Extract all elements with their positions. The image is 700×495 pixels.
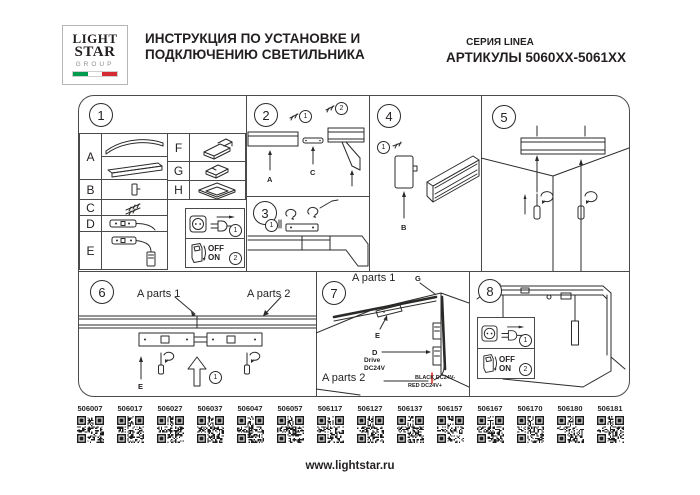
qr-item: 506157 <box>435 404 465 443</box>
substep-1-badge: 1 <box>209 371 222 384</box>
part-label-B: B <box>79 179 102 200</box>
qr-label: 506037 <box>197 404 222 413</box>
qr-item: 506007 <box>75 404 105 443</box>
part-C-screws <box>101 199 168 216</box>
plug-in-step: 1 <box>186 209 244 238</box>
articles-label: АРТИКУЛЫ 5060XX-5061XX <box>400 50 672 65</box>
part-F-corner-connector <box>189 133 246 162</box>
qr-label: 506167 <box>477 404 502 413</box>
qr-item: 506117 <box>315 404 345 443</box>
drive-label: Drive <box>364 358 380 365</box>
switch-icon <box>481 353 497 374</box>
part-G-elbow-connector <box>189 161 246 181</box>
qr-code-icon <box>517 416 544 443</box>
italian-flag-icon <box>72 71 118 77</box>
label-C: C <box>310 169 315 177</box>
page-title: ИНСТРУКЦИЯ ПО УСТАНОВКЕ И ПОДКЛЮЧЕНИЮ СВ… <box>145 31 365 63</box>
step-5-panel: 5 <box>481 96 629 271</box>
qr-code-row: 5060075060175060275060375060475060575061… <box>0 404 700 443</box>
substep-2-badge: 2 <box>335 102 348 115</box>
label-D: D <box>372 349 377 357</box>
part-label-A: A <box>79 133 102 180</box>
qr-item: 506017 <box>115 404 145 443</box>
substep-2-badge: 2 <box>519 363 532 376</box>
series-label: СЕРИЯ LINEA <box>420 37 580 48</box>
a-parts-1-label: A parts 1 <box>137 289 180 300</box>
qr-label: 506180 <box>557 404 582 413</box>
website-label: www.lightstar.ru <box>0 460 700 472</box>
step-6-panel: 6 A parts 1 A parts 2 E 1 <box>79 271 316 396</box>
step-8-number: 8 <box>478 279 502 303</box>
part-label-E: E <box>79 231 102 270</box>
qr-code-icon <box>77 416 104 443</box>
qr-item: 506167 <box>475 404 505 443</box>
qr-label: 506137 <box>397 404 422 413</box>
part-H-corner-cover <box>189 180 246 200</box>
qr-code-icon <box>277 416 304 443</box>
step-6-number: 6 <box>90 280 114 304</box>
black-wire-label: BLACK DC24V- <box>415 376 455 382</box>
qr-item: 506127 <box>355 404 385 443</box>
qr-code-icon <box>317 416 344 443</box>
label-E: E <box>138 383 143 391</box>
elbow-connector-icon <box>190 162 245 180</box>
qr-label: 506027 <box>157 404 182 413</box>
qr-code-icon <box>557 416 584 443</box>
qr-item: 506180 <box>555 404 585 443</box>
qr-item: 506027 <box>155 404 185 443</box>
qr-code-icon <box>397 416 424 443</box>
label-B: B <box>401 224 406 232</box>
label-A: A <box>267 176 272 184</box>
title-line1: ИНСТРУКЦИЯ ПО УСТАНОВКЕ И <box>145 31 365 47</box>
off-label: OFF <box>499 355 515 364</box>
part-E-corner-driver <box>101 231 168 270</box>
qr-label: 506007 <box>77 404 102 413</box>
step-2-panel: 2 1 2 A C <box>246 96 369 196</box>
step-3-panel: 3 1 <box>246 196 369 271</box>
dc24v-label: DC24V <box>364 366 385 373</box>
switch-on-step: OFF ON 2 <box>478 348 534 378</box>
qr-label: 506181 <box>597 404 622 413</box>
part-D-feed-cable <box>101 215 168 232</box>
qr-label: 506157 <box>437 404 462 413</box>
step-7-panel: 7 A parts 1 G E D Drive DC24V <box>316 271 469 396</box>
off-on-label: OFF ON <box>499 355 515 373</box>
qr-code-icon <box>437 416 464 443</box>
qr-label: 506057 <box>277 404 302 413</box>
off-label: OFF <box>208 244 224 253</box>
instruction-sheet: LIGHT STAR GROUP ИНСТРУКЦИЯ ПО УСТАНОВКЕ… <box>0 0 700 495</box>
part-A-curved-track <box>101 133 168 157</box>
straight-track-icon <box>102 157 167 179</box>
step-2-number: 2 <box>254 103 278 127</box>
step-1-number: 1 <box>89 103 113 127</box>
installation-diagram: 1 A B C <box>78 95 630 397</box>
label-G: G <box>415 275 421 283</box>
qr-label: 506170 <box>517 404 542 413</box>
red-wire-label: RED DC24V+ <box>408 384 442 390</box>
part-label-G: G <box>167 161 190 181</box>
switch-icon <box>189 242 206 264</box>
qr-label: 506117 <box>318 404 343 413</box>
qr-code-icon <box>477 416 504 443</box>
substep-2-badge: 2 <box>229 252 242 265</box>
substep-1-badge: 1 <box>229 224 242 237</box>
qr-label: 506127 <box>357 404 382 413</box>
plug-in-step: 1 <box>478 318 534 348</box>
a-parts-1-label: A parts 1 <box>352 273 395 284</box>
step-4-panel: 4 1 B <box>369 96 481 271</box>
qr-code-icon <box>117 416 144 443</box>
qr-code-icon <box>237 416 264 443</box>
connector-cable-icon <box>102 216 167 231</box>
qr-item: 506181 <box>595 404 625 443</box>
part-B-end-cap <box>101 179 168 200</box>
off-on-label: OFF ON <box>208 244 224 262</box>
label-E: E <box>375 332 380 340</box>
socket-icon <box>481 325 498 342</box>
substep-1-badge: 1 <box>377 141 390 154</box>
step-1-panel: 1 A B C <box>79 96 246 271</box>
corner-cover-icon <box>190 181 245 199</box>
logo-line2: STAR <box>75 45 116 59</box>
qr-code-icon <box>357 416 384 443</box>
qr-code-icon <box>197 416 224 443</box>
qr-item: 506037 <box>195 404 225 443</box>
step-4-number: 4 <box>377 104 401 128</box>
socket-icon <box>189 215 207 233</box>
a-parts-2-label: A parts 2 <box>322 373 365 384</box>
screws-icon <box>102 200 167 215</box>
qr-item: 506057 <box>275 404 305 443</box>
qr-label: 506047 <box>237 404 262 413</box>
on-label: ON <box>499 364 511 373</box>
power-requirements-box: 1 OFF ON 2 <box>477 317 535 379</box>
title-line2: ПОДКЛЮЧЕНИЮ СВЕТИЛЬНИКА <box>145 47 365 63</box>
a-parts-2-label: A parts 2 <box>247 289 290 300</box>
lightstar-logo: LIGHT STAR GROUP <box>62 25 128 85</box>
substep-1-badge: 1 <box>519 334 532 347</box>
curved-track-icon <box>102 134 167 156</box>
part-label-D: D <box>79 215 102 232</box>
step-5-number: 5 <box>492 105 516 129</box>
qr-item: 506170 <box>515 404 545 443</box>
corner-connector-icon <box>190 134 245 161</box>
qr-code-icon <box>597 416 624 443</box>
corner-cable-driver-icon <box>102 232 167 269</box>
qr-label: 506017 <box>117 404 142 413</box>
step-8-panel: 8 <box>469 271 629 396</box>
qr-item: 506047 <box>235 404 265 443</box>
part-label-F: F <box>167 133 190 162</box>
qr-code-icon <box>157 416 184 443</box>
substep-1-badge: 1 <box>265 219 278 232</box>
step-7-number: 7 <box>322 281 346 305</box>
substep-1-badge: 1 <box>299 110 312 123</box>
logo-line3: GROUP <box>76 61 115 68</box>
on-label: ON <box>208 253 220 262</box>
switch-on-step: OFF ON 2 <box>186 238 244 267</box>
end-cap-icon <box>102 180 167 199</box>
part-label-C: C <box>79 199 102 216</box>
power-requirements-box: 1 OFF ON 2 <box>185 208 245 268</box>
part-label-H: H <box>167 180 190 200</box>
part-A-straight-track <box>101 156 168 180</box>
qr-item: 506137 <box>395 404 425 443</box>
